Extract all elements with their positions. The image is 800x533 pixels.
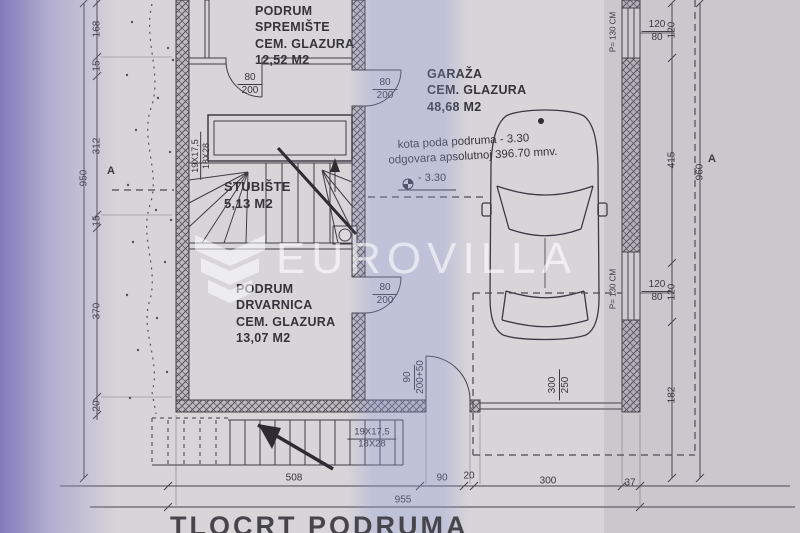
dim-right-total: 960 <box>695 164 706 181</box>
terrain-line <box>126 4 174 414</box>
dim-right-1: 415 <box>667 152 678 169</box>
dim-bottom-total: 955 <box>395 495 412 506</box>
dim-left-5: 20 <box>92 400 103 411</box>
door-label-2: 80 200 <box>372 77 397 101</box>
parapet-label-1: P= 130 CM <box>609 12 618 52</box>
dim-bottom-4: 37 <box>624 478 635 489</box>
stair-label-interior: 19X17,5 18X28 <box>190 132 212 180</box>
door-label-3: 80 200 <box>372 282 397 306</box>
dim-bottom-1: 90 <box>436 473 447 484</box>
stair-label-exterior: 19X17,5 18X28 <box>347 428 396 451</box>
room-label-stubiste: STUBIŠTE 5,13 M2 <box>224 179 291 213</box>
dim-right-2: 120 <box>667 284 678 301</box>
floorplan-photo: PODRUM SPREMIŠTE CEM. GLAZURA 12,52 M2 S… <box>0 0 800 533</box>
watermark-brand: EUROVILLA <box>276 234 577 284</box>
garage-door-label: 300 250 <box>547 370 571 401</box>
dim-bottom-0: 508 <box>286 473 303 484</box>
dim-bottom-2: 20 <box>463 471 474 482</box>
section-marker-right: A <box>708 153 716 165</box>
dim-left-3: 15 <box>92 215 103 226</box>
dim-left-total: 950 <box>79 170 90 187</box>
dim-left-0: 168 <box>92 21 103 38</box>
room-label-spremiste: PODRUM SPREMIŠTE CEM. GLAZURA 12,52 M2 <box>255 3 354 68</box>
level-marker-value: - 3.30 <box>418 172 446 184</box>
dim-left-2: 312 <box>92 138 103 155</box>
section-marker-left: A <box>107 165 115 177</box>
entry-door-label: 90 200+50 <box>402 360 426 394</box>
room-label-drvarnica: PODRUM DRVARNICA CEM. GLAZURA 13,07 M2 <box>236 281 335 346</box>
plan-title: TLOCRT PODRUMA <box>170 511 468 533</box>
dim-right-0: 120 <box>667 22 678 39</box>
dim-left-1: 15 <box>92 60 103 71</box>
dim-bottom-3: 300 <box>540 476 557 487</box>
dim-left-4: 370 <box>92 303 103 320</box>
door-label-1: 80 200 <box>237 72 262 96</box>
parapet-label-2: P= 130 CM <box>609 269 618 309</box>
dim-right-3: 182 <box>667 387 678 404</box>
room-label-garaza: GARAŽA CEM. GLAZURA 48,68 M2 <box>427 66 526 115</box>
